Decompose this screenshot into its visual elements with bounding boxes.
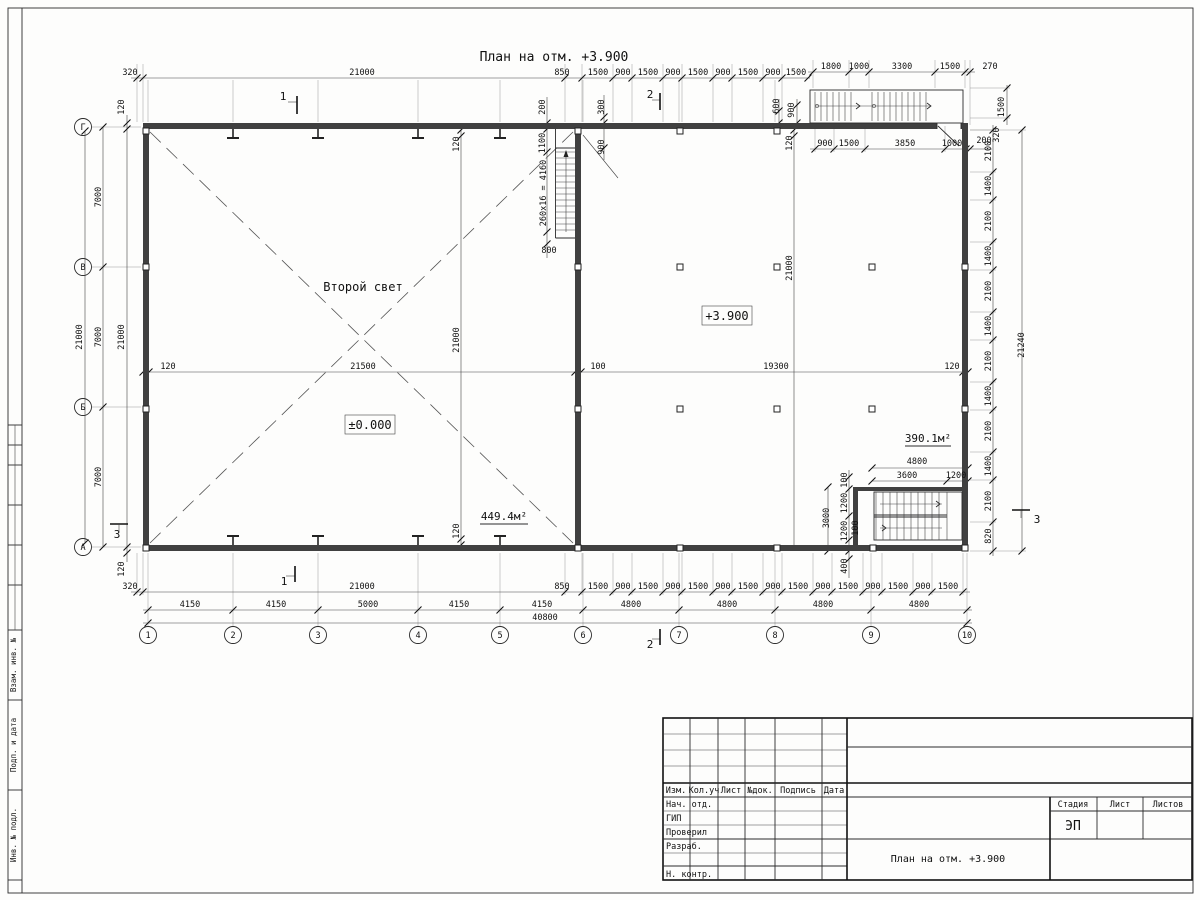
dim: 900: [787, 102, 797, 117]
dim: 1400: [984, 386, 994, 406]
dim: 2100: [984, 211, 994, 231]
stair-top-right: [810, 90, 963, 146]
dim: 1500: [940, 62, 960, 72]
dim: 21500: [350, 362, 376, 372]
tb-sheets-label: Листов: [1153, 800, 1184, 810]
dim: 1500: [638, 582, 658, 592]
double-height-cross: [150, 132, 573, 543]
axis-number: 10: [962, 631, 972, 641]
axis-number: 6: [580, 631, 585, 641]
dim: 2100: [984, 281, 994, 301]
tb-header-podpis: Подпись: [780, 786, 816, 796]
dim: 1200: [840, 521, 850, 541]
dim: 4150: [449, 600, 469, 610]
dim: 7000: [94, 467, 104, 487]
dim: 120: [160, 362, 175, 372]
dim: 900: [815, 582, 830, 592]
tb-header-data: Дата: [824, 786, 844, 796]
stamp-label: Инв. № подл.: [9, 808, 18, 862]
second-light-label: Второй свет: [323, 280, 402, 294]
dim: 900: [715, 68, 730, 78]
dim: 40800: [532, 613, 558, 623]
dim: 21000: [117, 324, 127, 350]
section-mark: 2: [647, 88, 654, 101]
dim: 1400: [984, 456, 994, 476]
dim: 320: [122, 582, 137, 592]
dim: 120: [117, 99, 127, 114]
dim: 1500: [638, 68, 658, 78]
dim: 820: [984, 528, 994, 543]
dim: 21240: [1017, 332, 1027, 358]
dim: 100: [590, 362, 605, 372]
dim: 4800: [621, 600, 641, 610]
dim: 900: [665, 582, 680, 592]
dim: 4800: [909, 600, 929, 610]
section-mark: 1: [281, 575, 288, 588]
tb-doc-title: План на отм. +3.900: [891, 854, 1005, 865]
dim: 4800: [717, 600, 737, 610]
dim: 270: [982, 62, 997, 72]
area-left-label: 449.4м²: [481, 510, 527, 523]
dimension-texts: 320 21000 850 1500 900 1500 900 1500 900…: [75, 62, 1027, 623]
axis-number: 4: [415, 631, 420, 641]
dim: 900: [615, 582, 630, 592]
dim: 7000: [94, 187, 104, 207]
dim: 4800: [813, 600, 833, 610]
tb-sheet-label: Лист: [1110, 800, 1130, 810]
dim: 1500: [838, 582, 858, 592]
dim: 1500: [588, 68, 608, 78]
dim: 2100: [984, 491, 994, 511]
title-block: Изм. Кол.уч Лист №док. Подпись Дата Нач.…: [663, 718, 1192, 880]
dim: 850: [554, 68, 569, 78]
dim: 1500: [688, 582, 708, 592]
stamp-label: Взам. инв. №: [9, 637, 18, 692]
dim: 900: [765, 68, 780, 78]
axis-number: 5: [497, 631, 502, 641]
axis-letter: А: [80, 543, 85, 553]
dim: 1500: [588, 582, 608, 592]
dim: 4150: [180, 600, 200, 610]
axis-letter: В: [80, 263, 85, 273]
dim: 1000: [849, 62, 869, 72]
dim: 200: [538, 99, 548, 114]
dim: 120: [117, 561, 127, 576]
dim: 2100: [984, 351, 994, 371]
dim: 900: [715, 582, 730, 592]
dim: 21000: [75, 324, 85, 350]
dim: 400: [840, 558, 850, 573]
dim: 1200: [840, 493, 850, 513]
tb-header-ndok: №док.: [746, 786, 773, 796]
dim: 900: [915, 582, 930, 592]
dim: 2100: [984, 421, 994, 441]
dim: 3300: [892, 62, 912, 72]
area-right-label: 390.1м²: [905, 432, 951, 445]
dim: 600: [772, 98, 782, 113]
axis-number: 7: [676, 631, 681, 641]
tb-header-izm: Изм.: [666, 786, 686, 796]
section-mark: 3: [114, 528, 121, 541]
dim: 21000: [785, 255, 795, 281]
dim: 5000: [358, 600, 378, 610]
dim: 120: [452, 523, 462, 538]
tb-row-razrab: Разраб.: [666, 841, 702, 852]
axis-letter: Б: [80, 403, 85, 413]
dim: 120: [944, 362, 959, 372]
dim: 120: [452, 136, 462, 151]
dim: 1500: [997, 97, 1007, 117]
dim: 2100: [984, 141, 994, 161]
floor-plan-drawing: Взам. инв. № Подп. и дата Инв. № подл. И…: [0, 0, 1200, 900]
dim: 300: [597, 99, 607, 114]
dim: 120: [785, 135, 795, 150]
stamp-label: Подп. и дата: [9, 718, 18, 772]
dim: 1500: [888, 582, 908, 592]
dim: 1000: [942, 139, 962, 149]
dim: 100: [851, 520, 861, 535]
dim: 1400: [984, 246, 994, 266]
stair-note: 260x16 = 4160: [539, 160, 549, 227]
axis-number: 1: [145, 631, 150, 641]
tb-stage-value: ЭП: [1065, 819, 1081, 834]
dim: 3600: [897, 471, 917, 481]
dim: 1500: [788, 582, 808, 592]
dim: 4150: [532, 600, 552, 610]
dim: 1100: [538, 133, 548, 153]
dim: 3850: [895, 139, 915, 149]
axis-number: 8: [772, 631, 777, 641]
dim: 900: [865, 582, 880, 592]
dim: 320: [122, 68, 137, 78]
dim: 4800: [907, 457, 927, 467]
axis-number: 9: [868, 631, 873, 641]
dim: 3000: [822, 508, 832, 528]
dim: 100: [840, 472, 850, 487]
axis-grid-lines: [92, 80, 967, 626]
dim: 320: [992, 127, 1002, 142]
dim: 900: [665, 68, 680, 78]
dim: 1500: [839, 139, 859, 149]
dim: 19300: [763, 362, 789, 372]
stair-interior-top: [556, 129, 619, 238]
axis-number: 3: [315, 631, 320, 641]
left-stamp: Взам. инв. № Подп. и дата Инв. № подл.: [8, 425, 22, 880]
dim: 900: [765, 582, 780, 592]
dim: 1400: [984, 316, 994, 336]
section-mark: 1: [280, 90, 287, 103]
dim: 800: [541, 246, 556, 256]
dim: 21000: [349, 582, 375, 592]
tb-row-nkontr: Н. контр.: [666, 870, 712, 880]
dim: 7000: [94, 327, 104, 347]
dim: 1500: [738, 582, 758, 592]
dimension-lines: [82, 60, 1027, 627]
dim: 1500: [738, 68, 758, 78]
axis-number: 2: [230, 631, 235, 641]
section-mark: 3: [1034, 513, 1041, 526]
dim: 900: [597, 139, 607, 154]
dim: 1800: [821, 62, 841, 72]
dim: 1500: [938, 582, 958, 592]
sheet-title: План на отм. +3.900: [480, 50, 629, 65]
room-labels: Второй свет ±0.000 +3.900 449.4м² 390.1м…: [323, 160, 951, 524]
dim: 1500: [688, 68, 708, 78]
dim: 900: [615, 68, 630, 78]
level-mark-zero: ±0.000: [348, 418, 391, 432]
stair-bottom-right: [874, 492, 962, 540]
dim: 850: [554, 582, 569, 592]
dim: 4150: [266, 600, 286, 610]
tb-stage-label: Стадия: [1058, 800, 1089, 810]
dim: 1200: [946, 471, 966, 481]
tb-header-list: Лист: [721, 786, 741, 796]
dim: 900: [817, 139, 832, 149]
dim: 21000: [452, 327, 462, 353]
dim: 21000: [349, 68, 375, 78]
tb-row-nach-otd: Нач. отд.: [666, 800, 712, 810]
axis-letter: Г: [80, 123, 85, 133]
section-mark: 2: [647, 638, 654, 651]
tb-header-koluch: Кол.уч: [689, 786, 720, 796]
dim: 1500: [786, 68, 806, 78]
tb-row-gip: ГИП: [666, 814, 681, 824]
tb-row-proveril: Проверил: [666, 828, 707, 838]
level-mark-3900: +3.900: [705, 309, 748, 323]
dim: 1400: [984, 176, 994, 196]
drawing-sheet: Взам. инв. № Подп. и дата Инв. № подл. И…: [0, 0, 1200, 900]
